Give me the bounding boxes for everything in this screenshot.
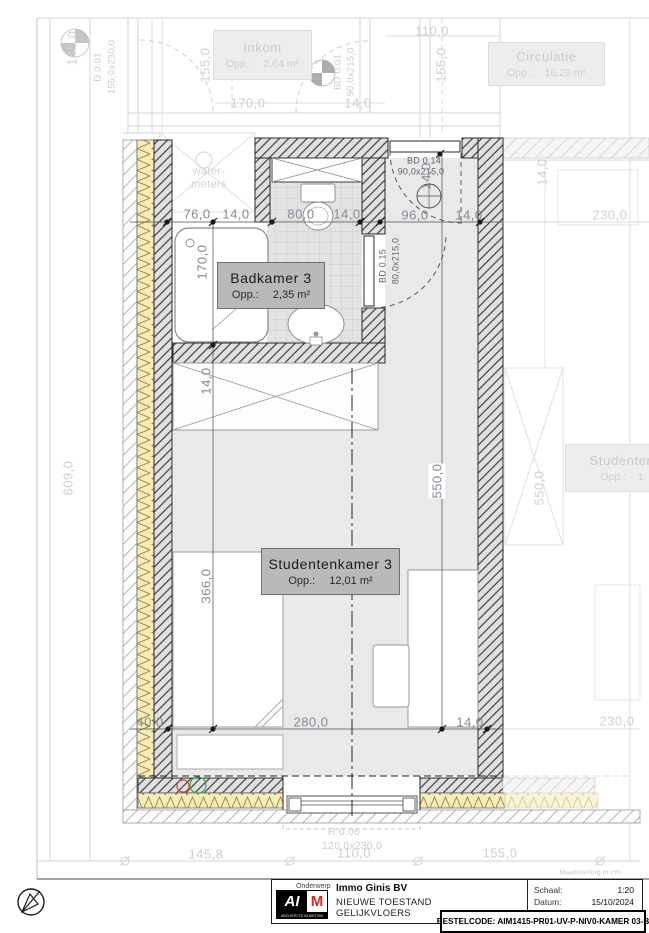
dim-550: 550,0 [429, 463, 446, 498]
chair [373, 645, 409, 707]
dim-550-faint: 550,0 [533, 470, 546, 505]
window-size-r006: 120,0x230,0 [322, 841, 382, 852]
room-label-studentenkamer: Studentenkamer 3 Opp.:12,01 m² [261, 548, 400, 595]
room-name: Studenten [566, 453, 649, 468]
opp-value: 16,29 m² [545, 67, 586, 79]
opp-label: Opp.: [226, 58, 252, 70]
dim-14-a: 14,0 [222, 208, 249, 221]
onderwerp-label: Onderwerp [296, 883, 331, 890]
dim-366: 366,0 [200, 568, 213, 603]
door-code-d001: D 0.01 [93, 52, 103, 81]
adjacent-room-faint [505, 368, 563, 545]
dim-170-bath: 170,0 [196, 244, 209, 279]
dim-14-wall: 14,0 [200, 367, 213, 394]
logo-m: M [307, 891, 327, 912]
dim-155-bottom: 155,0 [482, 847, 517, 860]
logo-ai: AI [277, 891, 307, 912]
dim-230-bottomright: 230,0 [599, 715, 634, 728]
door-size-bd015: 80,0x215,0 [392, 238, 401, 285]
dim-14-top: 14,0 [344, 97, 371, 110]
project-line2: GELIJKVLOERS [336, 908, 411, 919]
dim-40-bottom: 40,0 [136, 716, 163, 729]
dim-110-top: 110,0 [415, 25, 449, 38]
watermeters-label-2: meters [191, 180, 227, 191]
opp-value: 2,64 m² [264, 58, 300, 70]
dim-14-c: 14,0 [455, 209, 482, 222]
schaal-value: 1:20 [617, 885, 634, 895]
opp-label: Opp.: [507, 67, 533, 79]
shaft-box [272, 158, 362, 182]
schaal-label: Schaal: [534, 885, 562, 895]
desk [408, 570, 478, 727]
opp-label: Opp.: [288, 575, 315, 587]
opp-value: 2,35 m² [273, 289, 310, 301]
logo-tagline: ARCHITECTS IN MOTION [276, 913, 328, 919]
dim-14-b: 14,0 [333, 208, 360, 221]
client-name: Immo Ginis BV [336, 883, 407, 894]
room-name: Badkamer 3 [218, 270, 324, 286]
dim-280-bottom: 280,0 [293, 716, 328, 729]
opp-value: 1 [638, 471, 644, 483]
dim-155-right: 155,0 [435, 47, 448, 82]
dim-80: 80,0 [287, 208, 314, 221]
dim-155-left: 155,0 [199, 47, 212, 82]
opp-label: Opp.: [232, 289, 259, 301]
room-label-inkom: Inkom Opp.:2,64 m² [213, 30, 312, 80]
floorplan-sheet: 145,0 D 0.01 155,0x230,0 155,0 170,0 14,… [0, 0, 649, 933]
north-arrow-icon [18, 889, 44, 915]
dim-230-topright: 230,0 [592, 209, 627, 222]
door-size-d001: 155,0x230,0 [107, 40, 117, 95]
room-label-adjacent: Studenten Opp.:1 [565, 444, 649, 492]
dim-14-bottom: 14,0 [456, 716, 483, 729]
room-label-badkamer: Badkamer 3 Opp.:2,35 m² [217, 262, 325, 309]
dim-96: 96,0 [401, 209, 428, 222]
floorplan-drawing [0, 0, 649, 933]
door-code-bd001: BD 0.01 [333, 54, 343, 90]
opp-value: 12,01 m² [329, 575, 372, 587]
dim-14-entry: 14,0 [420, 162, 433, 189]
aim-logo: AI M ARCHITECTS IN MOTION [276, 890, 328, 919]
room-name: Circulatie [489, 49, 604, 64]
datum-label: Datum: [534, 897, 561, 907]
dim-14-right-faint: 14,0 [536, 158, 549, 185]
units-note: Maatvoering in cm [559, 868, 620, 876]
window-code-r006: R 0.06 [328, 827, 360, 838]
dim-609: 609,0 [62, 460, 75, 495]
project-line1: NIEUWE TOESTAND [336, 897, 432, 908]
datum-value: 15/10/2024 [591, 897, 634, 907]
door-code-bd015: BD 0.15 [379, 249, 388, 283]
room-label-circulatie: Circulatie Opp.:16,29 m² [488, 42, 605, 86]
dim-76: 76,0 [183, 208, 210, 221]
room-name: Studentenkamer 3 [262, 556, 399, 572]
opp-label: Opp.: [600, 471, 626, 483]
room-name: Inkom [214, 40, 311, 55]
watermeters-label-1: water- [193, 167, 226, 178]
dim-145: 145,0 [66, 30, 79, 65]
dim-170-top: 170,0 [230, 97, 265, 110]
dim-145-8: 145,8 [188, 848, 223, 861]
door-size-bd001: 90,0x215,0 [346, 47, 356, 96]
bestelcode-box: BESTELCODE: AIM1415-PR01-UV-P-NIV0-KAMER… [440, 910, 646, 933]
